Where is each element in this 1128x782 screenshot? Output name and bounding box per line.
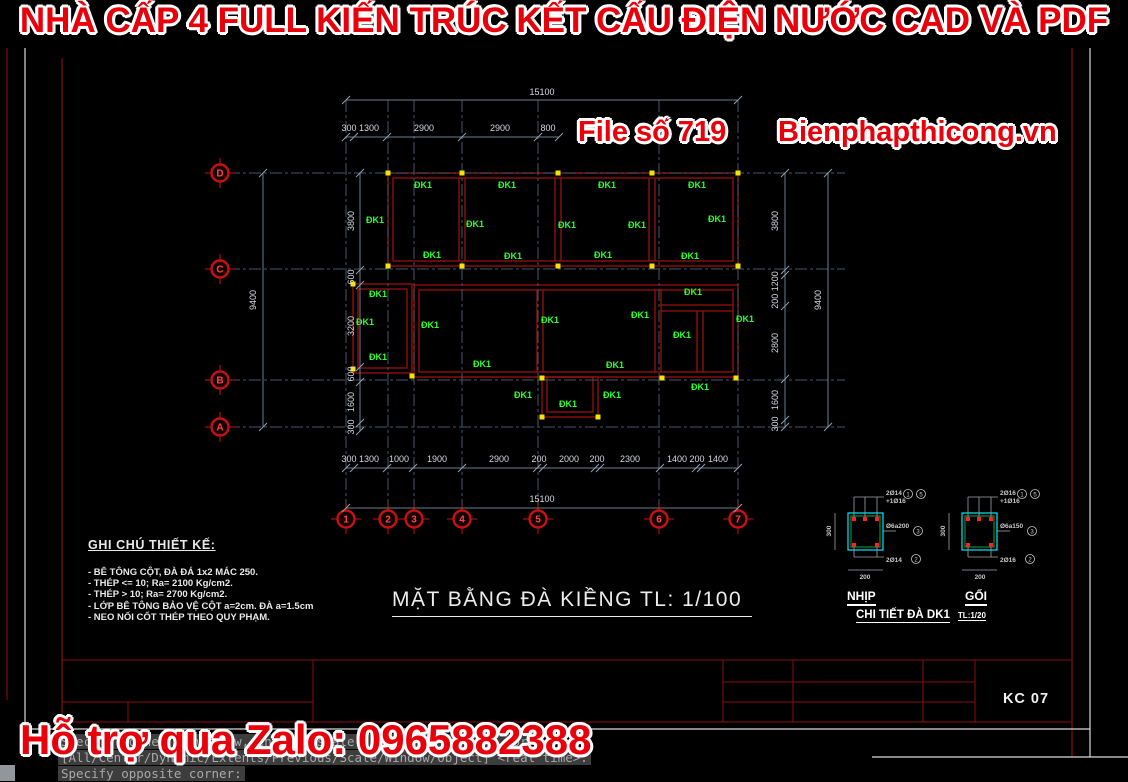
dim-label: 300 (341, 454, 356, 464)
beam-label: ĐK1 (681, 251, 699, 261)
dim-label: 1300 (359, 454, 379, 464)
rebar-top-label: 2Ø14 (886, 490, 902, 497)
command-line-row[interactable]: Specify opposite corner: (58, 766, 591, 782)
dim-label: 1600 (346, 392, 356, 412)
dim-label: 9400 (813, 290, 823, 310)
detail-title: CHI TIẾT ĐÀ DK1 TL:1/20 (856, 609, 986, 623)
beam-label: ĐK1 (603, 390, 621, 400)
beam-label: ĐK1 (466, 219, 484, 229)
dim-label: 1000 (389, 454, 409, 464)
beam-detail-nhip: 2Ø14 +1Ø16 Ø6a200 2Ø14 200 300 1 5 3 2 (826, 490, 926, 582)
dim-label: 200 (531, 454, 546, 464)
callout-number: 1 (1020, 493, 1024, 499)
beam-label: ĐK1 (423, 250, 441, 260)
dim-label: 3800 (770, 211, 780, 231)
grid-bubble-label: 5 (535, 515, 541, 526)
beam-node (410, 374, 415, 379)
dim-label: 2300 (620, 454, 640, 464)
note-item: - BÊ TÔNG CỘT, ĐÀ ĐÁ 1x2 MÁC 250. (88, 567, 313, 578)
beam-label: ĐK1 (514, 390, 532, 400)
beam-node (734, 376, 739, 381)
dim-label: 300 (770, 416, 780, 431)
beam-node (460, 264, 465, 269)
dim-label: 9400 (248, 290, 258, 310)
stirrup-label: Ø6a150 (1000, 523, 1024, 530)
beam-label: ĐK1 (498, 180, 516, 190)
grid-bubble-label: 3 (411, 515, 417, 526)
beam-detail-goi: 2Ø16 +1Ø16 Ø6a150 2Ø16 200 300 1 5 3 2 (940, 490, 1040, 582)
beam-label: ĐK1 (541, 315, 559, 325)
dim-label: 2800 (770, 333, 780, 353)
plan-title: MẶT BẰNG ĐÀ KIỀNG TL: 1/100 (392, 588, 752, 617)
beam-label: ĐK1 (414, 180, 432, 190)
callout-number: 2 (914, 558, 918, 564)
website-watermark: Bienphapthicong.vn (778, 116, 1057, 149)
dim-label: 15100 (529, 87, 554, 97)
dim-label: 300 (341, 123, 356, 133)
callout-number: 5 (919, 493, 923, 499)
grid-bubble-label: 2 (385, 515, 391, 526)
beam-node (386, 171, 391, 176)
note-item: - LỚP BÊ TÔNG BẢO VỆ CỘT a=2cm. ĐÀ a=1.5… (88, 601, 313, 612)
beam-node (556, 171, 561, 176)
zalo-support-watermark: Hỗ trợ qua Zalo: 0965882388 (20, 716, 591, 764)
beam-node (596, 415, 601, 420)
beam-label: ĐK1 (606, 360, 624, 370)
grid-bubble-label: A (216, 423, 223, 434)
note-item: - NEO NỐI CỐT THÉP THEO QUY PHẠM. (88, 612, 313, 623)
callout-number: 3 (1030, 530, 1034, 536)
beam-label: ĐK1 (673, 330, 691, 340)
dim-label: 3200 (346, 316, 356, 336)
beam-label: ĐK1 (558, 220, 576, 230)
beam-node (540, 415, 545, 420)
section-label-goi: GỐI (965, 589, 987, 606)
beam-label: ĐK1 (684, 287, 702, 297)
grid-bubble-label: B (216, 376, 223, 387)
rebar-top-extra-label: +1Ø16 (886, 498, 906, 505)
beam-node (650, 264, 655, 269)
beam-node (540, 376, 545, 381)
dim-label: 600 (346, 366, 356, 381)
rebar-top-label: 2Ø16 (1000, 490, 1016, 497)
detail-title-scale: TL:1/20 (958, 611, 986, 621)
dim-label: 200 (589, 454, 604, 464)
note-item: - THÉP <= 10; Ra= 2100 Kg/cm2. (88, 578, 313, 589)
title-block (62, 660, 1072, 722)
stirrup-label: Ø6a200 (886, 523, 910, 530)
grid-bubble-label: 1 (343, 515, 349, 526)
beam-label: ĐK1 (631, 310, 649, 320)
beam-node (736, 264, 741, 269)
dim-label: 1600 (770, 390, 780, 410)
width-dim: 200 (975, 574, 986, 581)
grid-bubble-label: D (216, 169, 223, 180)
dim-label: 800 (540, 123, 555, 133)
beam-label: ĐK1 (473, 359, 491, 369)
beam-label: ĐK1 (708, 214, 726, 224)
dim-label: 2000 (559, 454, 579, 464)
beam-label: ĐK1 (688, 180, 706, 190)
beam-node (650, 171, 655, 176)
beam-node (736, 171, 741, 176)
callout-number: 1 (906, 493, 910, 499)
sheet-number: KC 07 (998, 691, 1054, 707)
rebar-bottom-label: 2Ø14 (886, 557, 902, 564)
dim-label: 600 (346, 269, 356, 284)
layout-tab-corner (0, 765, 15, 781)
beam-label: ĐK1 (356, 317, 374, 327)
beam-label: ĐK1 (421, 320, 439, 330)
beam-label: ĐK1 (598, 180, 616, 190)
grid-bubble-label: 4 (459, 515, 465, 526)
beam-node (556, 264, 561, 269)
beam-label: ĐK1 (594, 250, 612, 260)
design-notes: GHI CHÚ THIẾT KẾ: - BÊ TÔNG CỘT, ĐÀ ĐÁ 1… (88, 538, 313, 623)
top-banner-watermark: NHÀ CẤP 4 FULL KIẾN TRÚC KẾT CẤU ĐIỆN NƯ… (20, 1, 1108, 41)
beam-label: ĐK1 (369, 352, 387, 362)
dim-label: 200 1200 (770, 271, 780, 309)
beam-label: ĐK1 (736, 314, 754, 324)
beam-label: ĐK1 (559, 399, 577, 409)
callout-number: 3 (916, 530, 920, 536)
note-item: - THÉP > 10; Ra= 2700 Kg/cm2. (88, 589, 313, 600)
dim-label: 300 (346, 419, 356, 434)
dim-label: 3800 (346, 211, 356, 231)
height-dim: 300 (826, 525, 833, 536)
grid-bubble-label: 6 (656, 515, 662, 526)
dim-label: 15100 (529, 494, 554, 504)
dim-label: 1900 (427, 454, 447, 464)
detail-title-text: CHI TIẾT ĐÀ DK1 (856, 609, 950, 623)
beam-label: ĐK1 (504, 251, 522, 261)
dim-label: 2900 (414, 123, 434, 133)
dim-label: 2900 (490, 123, 510, 133)
dim-label: 1400 (667, 454, 687, 464)
beam-label: ĐK1 (369, 289, 387, 299)
grid-bubble-label: 7 (735, 515, 741, 526)
height-dim: 300 (940, 525, 947, 536)
width-dim: 200 (860, 574, 871, 581)
beam-label: ĐK1 (691, 382, 709, 392)
autocad-viewport[interactable]: DCBA1234567ĐK1ĐK1ĐK1ĐK1ĐK1ĐK1ĐK1ĐK1ĐK1ĐK… (0, 0, 1128, 781)
callout-number: 2 (1028, 558, 1032, 564)
callout-number: 5 (1033, 493, 1037, 499)
file-number-watermark: File số 719 (578, 116, 726, 149)
section-label-nhip: NHỊP (847, 589, 876, 606)
rebar-bottom-label: 2Ø16 (1000, 557, 1016, 564)
notes-items: - BÊ TÔNG CỘT, ĐÀ ĐÁ 1x2 MÁC 250.- THÉP … (88, 567, 313, 623)
dim-label: 2900 (489, 454, 509, 464)
rebar-top-extra-label: +1Ø16 (1000, 498, 1020, 505)
beam-label: ĐK1 (628, 220, 646, 230)
beam-label: ĐK1 (366, 215, 384, 225)
beam-node (386, 264, 391, 269)
dim-label: 1400 (708, 454, 728, 464)
dim-label: 200 (689, 454, 704, 464)
grid-bubble-label: C (216, 265, 223, 276)
beam-node (660, 376, 665, 381)
beam-node (460, 171, 465, 176)
dim-label: 1300 (359, 123, 379, 133)
notes-title: GHI CHÚ THIẾT KẾ: (88, 538, 313, 552)
